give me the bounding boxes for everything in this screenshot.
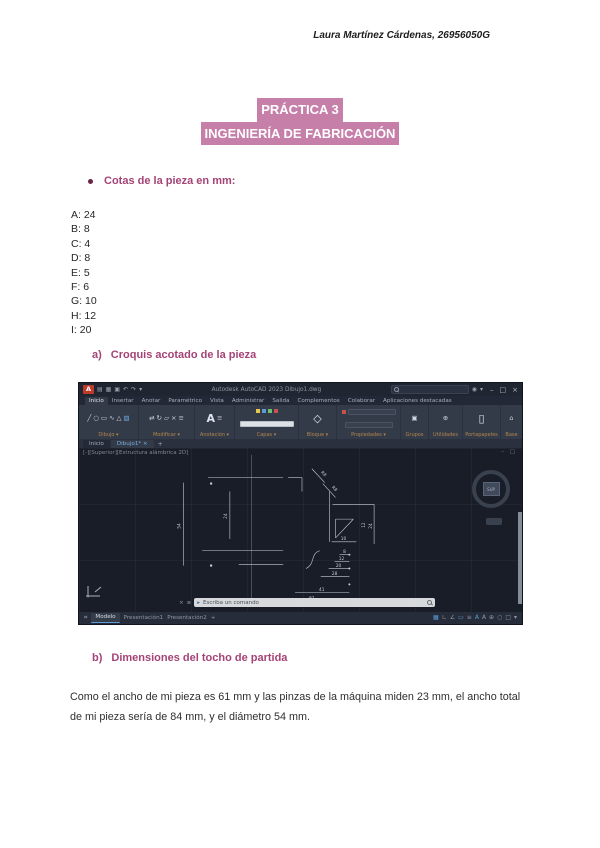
svg-text:R8: R8 <box>331 485 339 493</box>
title-line-1: PRÁCTICA 3 <box>257 98 343 122</box>
title-line-2: INGENIERÍA DE FABRICACIÓN <box>201 122 400 146</box>
group-tool-icons: ▣ <box>401 405 428 431</box>
autocad-logo-icon[interactable]: A <box>83 385 94 394</box>
move-tool-icon[interactable]: ⇄ <box>149 415 154 422</box>
array-tool-icon[interactable]: ≡ <box>178 415 183 422</box>
section-a-heading: a) Croquis acotado de la pieza <box>92 349 256 361</box>
document-title: PRÁCTICA 3 INGENIERÍA DE FABRICACIÓN <box>0 98 600 145</box>
measure-icon[interactable]: ⊕ <box>443 415 448 422</box>
ortho-mode-icon[interactable]: ∟ <box>442 615 447 621</box>
layer-dropdown[interactable] <box>240 421 294 427</box>
annotation-visibility-icon[interactable]: A <box>482 615 486 621</box>
ribbon-tab-parametrico[interactable]: Paramétrico <box>164 397 206 405</box>
panel-title-dibujo[interactable]: Dibujo ▾ <box>79 431 138 439</box>
ucs-axis-icon <box>85 584 103 598</box>
bullet-heading-label: Cotas de la pieza en mm: <box>104 175 235 187</box>
svg-text:20: 20 <box>336 563 342 568</box>
start-tab[interactable]: Inicio <box>83 440 110 448</box>
layout1-tab[interactable]: Presentación1 <box>124 615 164 621</box>
ribbon-panel-base: ⌂ Base <box>501 405 522 439</box>
dimension-item: A: 24 <box>71 208 97 222</box>
ribbon-panel-propiedades: Propiedades ▾ <box>337 405 401 439</box>
polar-tracking-icon[interactable]: ∠ <box>450 615 455 621</box>
redo-icon[interactable]: ↷ <box>131 387 136 393</box>
search-icon <box>394 387 399 392</box>
svg-text:54: 54 <box>176 523 181 529</box>
dimension-item: F: 6 <box>71 280 97 294</box>
panel-title-utilidades[interactable]: Utilidades <box>429 431 462 439</box>
ribbon-panel-grupos: ▣ Grupos <box>401 405 429 439</box>
annotation-tool-icons: A ≡ <box>195 405 234 431</box>
svg-text:12: 12 <box>361 522 366 528</box>
layer-color-icon[interactable] <box>274 409 278 413</box>
annotation-scale-icon[interactable]: A <box>475 615 479 621</box>
line-tool-icon[interactable]: ╱ <box>87 415 91 422</box>
layer-color-icon[interactable] <box>262 409 266 413</box>
command-placeholder: Escriba un comando <box>203 600 259 606</box>
svg-text:12: 12 <box>339 556 345 561</box>
clean-screen-icon[interactable]: □ <box>505 615 511 621</box>
search-input[interactable] <box>391 385 469 394</box>
ribbon-panel-modificar: ⇄ ↻ ▱ × ≡ Modificar ▾ <box>139 405 195 439</box>
save-icon[interactable]: ▤ <box>97 387 103 393</box>
workspace-icon[interactable]: ⊕ <box>489 615 494 621</box>
isolate-objects-icon[interactable]: ○ <box>497 615 502 621</box>
new-layout-button[interactable]: + <box>211 615 216 621</box>
close-button[interactable]: × <box>512 386 518 394</box>
svg-text:28: 28 <box>332 571 338 576</box>
drawing-tab-bar: Inicio Dibujo1* × + <box>79 439 522 448</box>
panel-title-bloque[interactable]: Bloque ▾ <box>299 431 336 439</box>
dimension-item: B: 8 <box>71 222 97 236</box>
status-bar: ⌗ Modelo Presentación1 Presentación2 + ▦… <box>79 612 522 624</box>
ribbon-tab-insertar[interactable]: Insertar <box>108 397 138 405</box>
paste-icon[interactable]: ▯ <box>478 413 484 424</box>
model-space-canvas[interactable]: [-][Superior][Estructura alámbrica 2D] –… <box>79 448 522 612</box>
ribbon-tab-anotar[interactable]: Anotar <box>138 397 165 405</box>
layer-color-icon[interactable] <box>268 409 272 413</box>
ribbon-tab-colaborar[interactable]: Colaborar <box>344 397 379 405</box>
viewcube-top-face[interactable]: SUP <box>483 482 500 496</box>
dimension-list: A: 24 B: 8 C: 4 D: 8 E: 5 F: 6 G: 10 H: … <box>71 208 97 338</box>
command-line: × ≡ ▸ Escriba un comando <box>179 598 435 607</box>
ribbon-panel-utilidades: ⊕ Utilidades <box>429 405 463 439</box>
model-tab[interactable]: Modelo <box>91 613 119 623</box>
panel-title-capas[interactable]: Capas ▾ <box>235 431 298 439</box>
color-dropdown[interactable] <box>348 409 396 415</box>
window-controls: – □ × <box>490 386 518 394</box>
section-b-heading: b) Dimensiones del tocho de partida <box>92 652 287 664</box>
grid-display-icon[interactable]: ⌗ <box>84 615 87 621</box>
svg-text:R8: R8 <box>320 470 328 478</box>
undo-icon[interactable]: ↶ <box>123 387 128 393</box>
drawing-tab[interactable]: Dibujo1* × <box>111 440 154 448</box>
autocad-window-screenshot: A ▤ ▦ ▣ ↶ ↷ ▾ Autodesk AutoCAD 2023 Dibu… <box>78 382 523 625</box>
section-b-title: Dimensiones del tocho de partida <box>111 652 287 664</box>
dimension-item: G: 10 <box>71 294 97 308</box>
open-icon[interactable]: ▦ <box>106 387 112 393</box>
ribbon-tab-inicio[interactable]: Inicio <box>85 397 108 405</box>
ribbon-panel-bloque: ◇ Bloque ▾ <box>299 405 337 439</box>
dimension-tool-icon[interactable]: ≡ <box>217 415 222 422</box>
trim-tool-icon[interactable]: × <box>171 415 176 422</box>
ribbon-panel-portapapeles: ▯ Portapapeles <box>463 405 501 439</box>
svg-text:10: 10 <box>341 536 347 541</box>
base-tool-icons: ⌂ <box>501 405 522 431</box>
ribbon-tab-administrar[interactable]: Administrar <box>228 397 269 405</box>
svg-text:41: 41 <box>319 587 325 592</box>
svg-text:24: 24 <box>223 513 228 519</box>
bullet-heading: Cotas de la pieza en mm: <box>88 175 235 187</box>
panel-title-base[interactable]: Base <box>501 431 522 439</box>
customization-icon[interactable]: ▾ <box>514 615 517 621</box>
section-a-letter: a) <box>92 349 102 361</box>
autocad-title-bar: A ▤ ▦ ▣ ↶ ↷ ▾ Autodesk AutoCAD 2023 Dibu… <box>79 383 522 396</box>
utility-tool-icons: ⊕ <box>429 405 462 431</box>
new-drawing-tab-button[interactable]: + <box>158 441 163 448</box>
section-a-title: Croquis acotado de la pieza <box>111 349 256 361</box>
modify-tool-icons: ⇄ ↻ ▱ × ≡ <box>139 405 194 431</box>
circle-tool-icon[interactable]: ○ <box>93 415 99 422</box>
ribbon-panel-capas: Capas ▾ <box>235 405 299 439</box>
svg-text:8: 8 <box>343 549 346 554</box>
ribbon-tab-complementos[interactable]: Complementos <box>293 397 343 405</box>
linetype-dropdown[interactable] <box>345 422 393 428</box>
spline-tool-icon[interactable]: ∿ <box>109 415 114 422</box>
technical-drawing: 54 24 R8 R8 24 12 10 8 12 20 28 41 61 <box>79 448 522 612</box>
navigation-bar[interactable] <box>486 518 502 525</box>
ribbon-panel-dibujo: ╱ ○ ▭ ∿ △ ▨ Dibujo ▾ <box>79 405 139 439</box>
ribbon: ╱ ○ ▭ ∿ △ ▨ Dibujo ▾ ⇄ ↻ ▱ × ≡ Modificar… <box>79 405 522 439</box>
vertical-scrollbar[interactable] <box>518 512 522 604</box>
ribbon-tab-aplicaciones[interactable]: Aplicaciones destacadas <box>379 397 456 405</box>
draw-tool-icons: ╱ ○ ▭ ∿ △ ▨ <box>79 405 138 431</box>
document-page: Laura Martínez Cárdenas, 26956050G PRÁCT… <box>0 0 600 848</box>
layout2-tab[interactable]: Presentación2 <box>167 615 207 621</box>
ribbon-tab-bar: Inicio Insertar Anotar Paramétrico Vista… <box>79 396 522 405</box>
help-icon[interactable]: ▾ <box>480 387 483 393</box>
group-icon[interactable]: ▣ <box>411 415 417 422</box>
dimension-item: E: 5 <box>71 266 97 280</box>
lineweight-icon[interactable]: ≡ <box>467 615 472 621</box>
dimension-item: C: 4 <box>71 237 97 251</box>
polygon-tool-icon[interactable]: △ <box>117 415 122 422</box>
panel-title-grupos[interactable]: Grupos <box>401 431 428 439</box>
status-toggle-icons: ▦ ∟ ∠ ▭ ≡ A A ⊕ ○ □ ▾ <box>433 615 517 621</box>
offset-tool-icon[interactable]: ▱ <box>164 415 169 422</box>
dimension-item: D: 8 <box>71 251 97 265</box>
minimize-button[interactable]: – <box>490 386 494 394</box>
quick-access-dropdown-icon[interactable]: ▾ <box>139 387 142 393</box>
ribbon-panel-anotacion: A ≡ Anotación ▾ <box>195 405 235 439</box>
text-tool-icon[interactable]: A <box>207 413 216 424</box>
window-title: Autodesk AutoCAD 2023 Dibujo1.dwg <box>212 387 322 393</box>
maximize-button[interactable]: □ <box>500 386 507 394</box>
print-icon[interactable]: ▣ <box>114 387 120 393</box>
customize-command-icon[interactable]: ≡ <box>187 600 192 606</box>
sign-in-icon[interactable]: ◉ <box>472 387 477 393</box>
body-paragraph: Como el ancho de mi pieza es 61 mm y las… <box>70 687 532 727</box>
command-input[interactable]: ▸ Escriba un comando <box>194 598 435 607</box>
panel-title-anotacion[interactable]: Anotación ▾ <box>195 431 234 439</box>
panel-title-modificar[interactable]: Modificar ▾ <box>139 431 194 439</box>
dimension-item: H: 12 <box>71 309 97 323</box>
ribbon-tab-vista[interactable]: Vista <box>206 397 228 405</box>
page-header-author: Laura Martínez Cárdenas, 26956050G <box>313 30 490 41</box>
clipboard-tool-icons: ▯ <box>463 405 500 431</box>
panel-title-propiedades[interactable]: Propiedades ▾ <box>337 431 400 439</box>
rotate-tool-icon[interactable]: ↻ <box>157 415 162 422</box>
object-color-icon[interactable] <box>342 410 346 414</box>
bullet-icon <box>88 179 93 184</box>
svg-text:24: 24 <box>368 523 373 529</box>
base-icon[interactable]: ⌂ <box>509 415 513 422</box>
command-search-icon[interactable] <box>427 600 432 605</box>
ribbon-tab-salida[interactable]: Salida <box>268 397 293 405</box>
panel-title-portapapeles[interactable]: Portapapeles <box>463 431 500 439</box>
insert-block-icon[interactable]: ◇ <box>313 413 321 424</box>
osnap-icon[interactable]: ▭ <box>458 615 464 621</box>
properties-tool-icons <box>337 405 400 431</box>
layer-color-icon[interactable] <box>256 409 260 413</box>
command-prompt-icon: ▸ <box>197 600 200 606</box>
snap-mode-icon[interactable]: ▦ <box>433 615 439 621</box>
viewcube[interactable]: SUP <box>472 470 510 508</box>
layer-tool-icons <box>235 405 298 431</box>
section-b-letter: b) <box>92 652 102 664</box>
close-tab-icon[interactable]: × <box>143 441 148 447</box>
close-command-icon[interactable]: × <box>179 600 184 606</box>
dimension-item: I: 20 <box>71 323 97 337</box>
hatch-tool-icon[interactable]: ▨ <box>124 415 130 422</box>
block-tool-icons: ◇ <box>299 405 336 431</box>
rectangle-tool-icon[interactable]: ▭ <box>101 415 107 422</box>
